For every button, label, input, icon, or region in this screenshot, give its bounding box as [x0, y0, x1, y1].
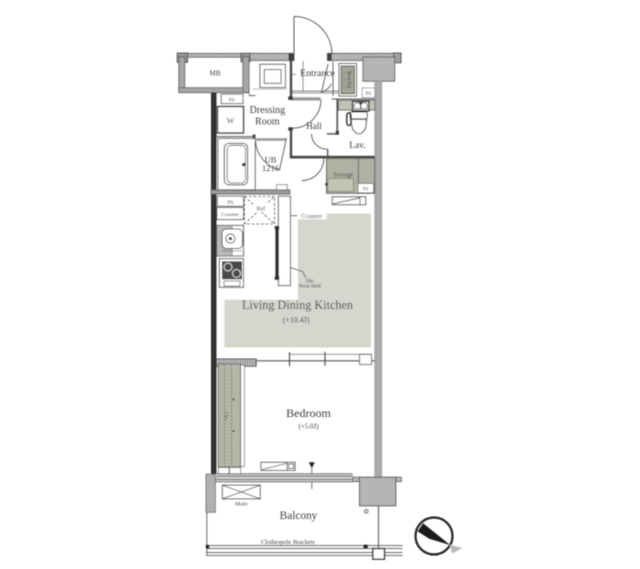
svg-text:Clothespole Brackets: Clothespole Brackets	[261, 539, 315, 546]
svg-text:(+5.0J): (+5.0J)	[298, 423, 319, 431]
svg-text:Counter: Counter	[301, 213, 323, 220]
svg-text:PS: PS	[363, 187, 369, 192]
svg-text:Dressing: Dressing	[250, 105, 286, 116]
svg-text:Ref: Ref	[256, 206, 265, 213]
svg-text:Dfs/: Dfs/	[306, 279, 315, 284]
svg-text:1216: 1216	[262, 163, 279, 173]
svg-text:Living Dining Kitchen: Living Dining Kitchen	[242, 298, 353, 312]
svg-text:PS: PS	[366, 92, 372, 97]
svg-text:W: W	[226, 116, 234, 126]
svg-text:(+10.4J): (+10.4J)	[283, 316, 310, 325]
svg-text:Book Shelf: Book Shelf	[299, 285, 321, 290]
svg-text:MB: MB	[210, 70, 221, 78]
svg-text:Lav.: Lav.	[349, 141, 366, 151]
svg-text:Bedroom: Bedroom	[286, 406, 331, 420]
svg-text:Clo.: Clo.	[223, 411, 229, 421]
svg-text:Balcony: Balcony	[280, 510, 318, 522]
svg-text:Entrance: Entrance	[300, 68, 335, 79]
svg-text:Multi: Multi	[235, 502, 248, 508]
svg-text:PS: PS	[227, 200, 233, 206]
svg-text:Room: Room	[255, 117, 280, 128]
svg-text:Counter: Counter	[221, 212, 239, 218]
svg-text:Shoe Box: Shoe Box	[347, 71, 352, 90]
svg-text:Storage: Storage	[333, 172, 353, 179]
svg-text:PS: PS	[229, 98, 235, 104]
